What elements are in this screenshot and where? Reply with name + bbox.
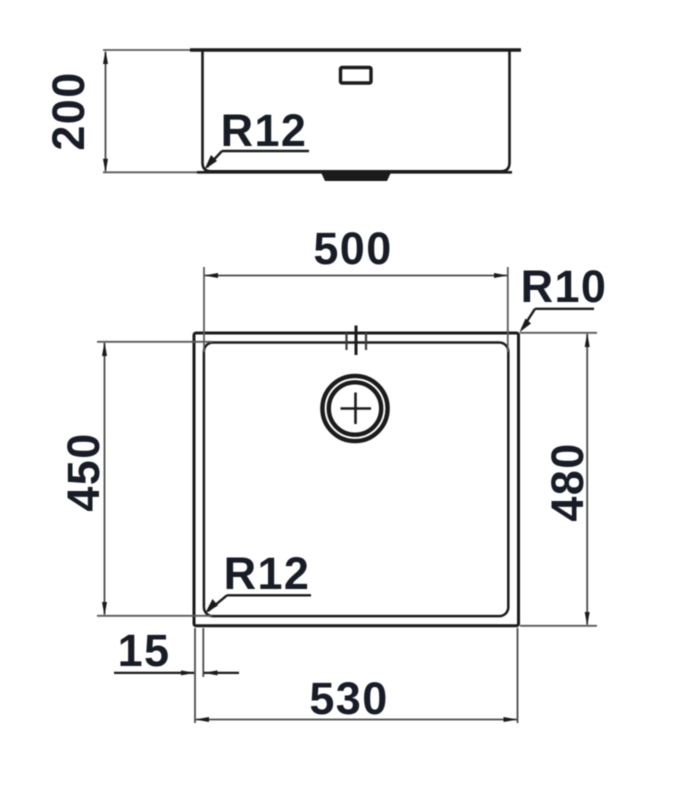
svg-text:450: 450 [58,432,109,511]
svg-text:15: 15 [118,625,171,676]
svg-text:480: 480 [542,442,593,521]
svg-text:500: 500 [313,223,392,274]
svg-text:200: 200 [43,71,94,150]
svg-text:R12: R12 [221,105,308,156]
svg-text:530: 530 [309,673,388,724]
svg-text:R10: R10 [521,261,608,312]
svg-text:R12: R12 [224,548,311,599]
